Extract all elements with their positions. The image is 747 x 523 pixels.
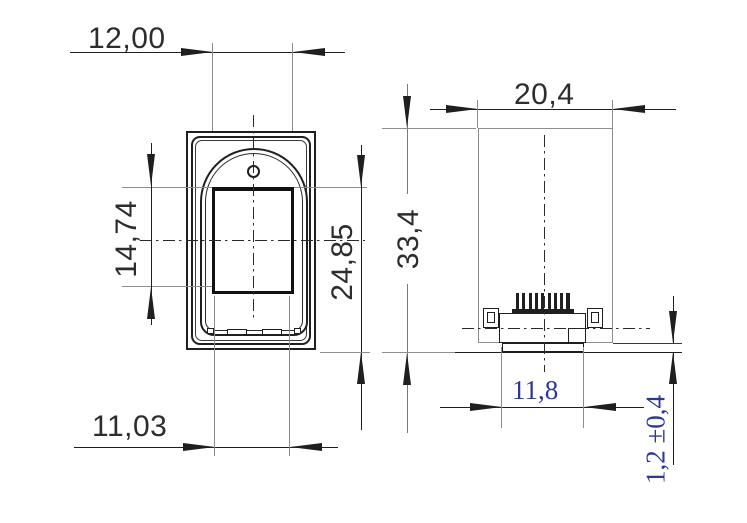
dim-arrow-down-icon bbox=[357, 155, 365, 187]
technical-drawing-canvas: 12,00 11,03 14,74 24,85 33,4 bbox=[0, 0, 747, 523]
connector-clip-left-slot bbox=[487, 312, 495, 323]
extension-line bbox=[477, 100, 478, 128]
connector-mating-lip bbox=[502, 343, 584, 352]
extension-line bbox=[612, 100, 613, 128]
dim-label-11-8: 11,8 bbox=[512, 375, 558, 406]
dim-label-12-00: 12,00 bbox=[88, 22, 166, 56]
dim-arrow-right-icon bbox=[181, 48, 213, 56]
dim-arrow-up-icon bbox=[147, 287, 155, 319]
dim-label-11-03: 11,03 bbox=[92, 410, 167, 444]
extension-line bbox=[292, 43, 293, 131]
dim-arrow-down-icon bbox=[147, 154, 155, 186]
dim-arrow-down-icon bbox=[403, 96, 411, 128]
dim-label-1-2: 1,2 ±0,4 bbox=[641, 380, 672, 500]
extension-line bbox=[320, 352, 370, 353]
dim-arrow-left-icon bbox=[584, 403, 616, 411]
extension-line bbox=[583, 347, 584, 428]
connector-clip-right-slot bbox=[591, 312, 599, 323]
extension-line bbox=[382, 352, 460, 353]
dim-arrow-left-icon bbox=[613, 105, 645, 113]
dim-label-20-4: 20,4 bbox=[514, 78, 574, 112]
tray-tab-right bbox=[262, 329, 282, 335]
front-vertical-centerline bbox=[253, 115, 254, 320]
extension-line bbox=[289, 296, 290, 456]
extension-line bbox=[501, 347, 502, 428]
dim-label-33-4: 33,4 bbox=[392, 194, 426, 284]
dim-arrow-right-icon bbox=[183, 443, 215, 451]
dim-arrow-right-icon bbox=[470, 403, 502, 411]
dim-line bbox=[361, 145, 362, 430]
side-vertical-centerline bbox=[544, 135, 545, 372]
pcb-bottom-line bbox=[613, 343, 682, 344]
dim-line-lower bbox=[673, 352, 674, 465]
dim-label-14-74: 14,74 bbox=[110, 186, 144, 292]
dim-arrow-left-icon bbox=[290, 443, 322, 451]
tray-tab-left bbox=[227, 329, 247, 335]
dim-arrow-down-icon bbox=[669, 311, 677, 343]
extension-line bbox=[212, 43, 213, 131]
extension-line bbox=[382, 128, 476, 129]
dim-arrow-up-icon bbox=[403, 353, 411, 385]
mounting-plane-line bbox=[455, 352, 682, 353]
dim-arrow-up-icon bbox=[357, 352, 365, 384]
side-horizontal-centerline bbox=[462, 328, 650, 329]
dim-label-24-85: 24,85 bbox=[326, 209, 360, 315]
dim-arrow-left-icon bbox=[293, 48, 325, 56]
connector-step bbox=[568, 328, 586, 343]
tray-nub-right bbox=[294, 328, 301, 334]
extension-line bbox=[214, 296, 215, 456]
dim-arrow-right-icon bbox=[446, 105, 478, 113]
tray-nub-left bbox=[207, 328, 214, 334]
